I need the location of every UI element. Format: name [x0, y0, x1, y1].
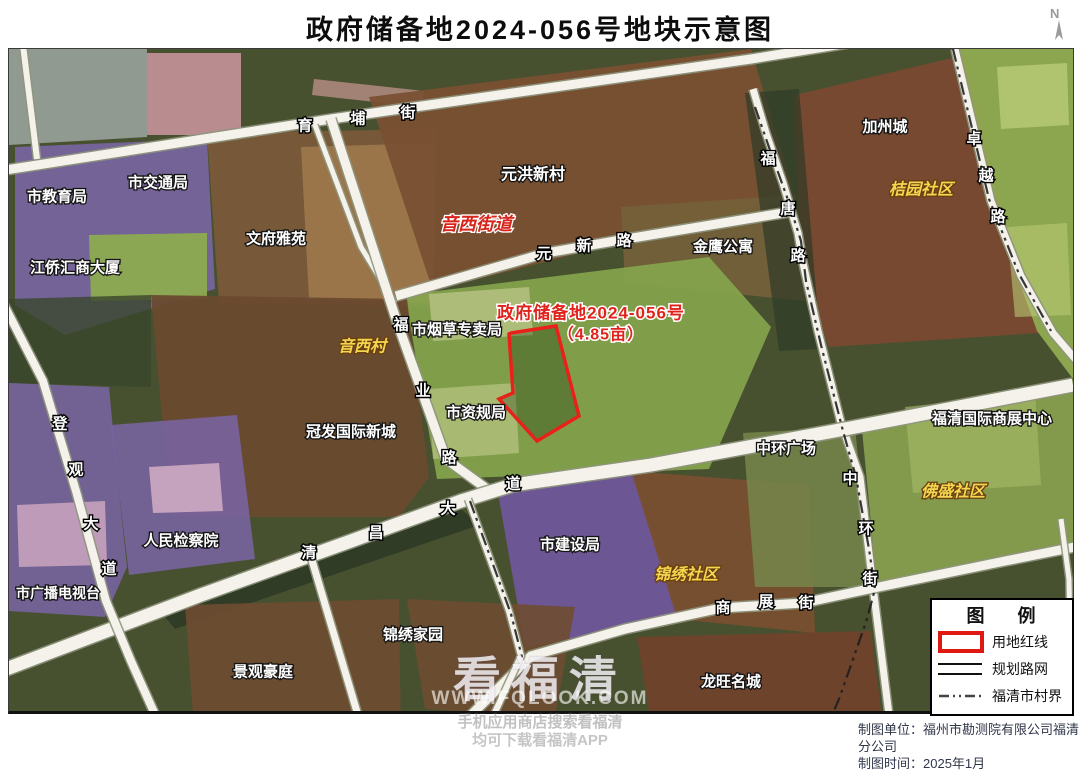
place-label: 市建设局	[540, 536, 600, 554]
place-label: 锦绣社区	[654, 566, 721, 584]
region-broadcast-purple	[9, 383, 127, 617]
road-label-char: 育	[297, 117, 312, 135]
region-longwang-brown	[637, 631, 881, 711]
road-label-char: 路	[990, 208, 1006, 226]
legend-label: 福清市村界	[992, 686, 1062, 706]
place-label: 江侨汇商大厦	[30, 259, 121, 277]
road-label-char: 街	[861, 570, 877, 588]
place-label: 音西村	[338, 338, 389, 356]
place-label: 龙旺名城	[700, 673, 761, 691]
double-line-icon	[938, 663, 984, 675]
credit-date: 制图时间：2025年1月	[858, 755, 1080, 772]
credit-unit: 制图单位：福州市勘测院有限公司福清分公司	[858, 721, 1080, 755]
legend-row-roads: 规划路网	[932, 655, 1072, 682]
place-label: 冠发国际新城	[306, 423, 396, 441]
north-arrow: N	[1042, 6, 1072, 46]
road-label-char: 卓	[966, 130, 981, 148]
road-label-char: 大	[83, 515, 98, 533]
legend: 图 例 用地红线 规划路网 福清市村界	[930, 598, 1074, 716]
region-track-field	[147, 53, 241, 135]
place-label: （4.85亩）	[558, 325, 644, 344]
place-label: 市交通局	[128, 174, 188, 192]
road-label-char: 清	[301, 544, 316, 562]
legend-row-boundary: 福清市村界	[932, 682, 1072, 709]
road-label-char: 埔	[350, 110, 365, 128]
region-treeband-left	[9, 295, 151, 387]
road-label-char: 街	[399, 104, 415, 122]
road-label-char: 路	[441, 449, 457, 467]
road-label-char: 福	[759, 150, 775, 168]
place-label: 文府雅苑	[246, 230, 306, 248]
road-label-char: 大	[440, 500, 455, 518]
road-label-char: 街	[797, 594, 813, 612]
place-label: 音西街道	[440, 214, 515, 234]
legend-title: 图 例	[932, 602, 1072, 628]
road-label-char: 环	[858, 521, 873, 538]
place-label: 加州城	[861, 118, 907, 136]
place-label: 金鹰公寓	[692, 238, 753, 256]
road-label-char: 中	[842, 470, 857, 488]
road-label-char: 路	[616, 232, 632, 250]
place-label: 福清国际商展中心	[931, 410, 1052, 428]
road-label-char: 道	[505, 475, 520, 493]
region-jingguan-brown	[185, 599, 401, 711]
road-label-char: 元	[536, 246, 551, 263]
road-label-char: 商	[715, 599, 730, 617]
road-label-char: 业	[415, 383, 430, 400]
place-label: 锦绣家园	[383, 626, 443, 644]
place-label: 桔园社区	[889, 181, 956, 199]
road-label-char: 越	[977, 167, 994, 185]
place-label: 市广播电视台	[16, 585, 100, 601]
place-label: 景观豪庭	[233, 663, 294, 681]
region-right-green-light1	[997, 63, 1069, 129]
red-outline-icon	[938, 631, 984, 653]
place-label: 中环广场	[756, 440, 816, 458]
legend-label: 规划路网	[992, 659, 1048, 679]
place-label: 佛盛社区	[921, 483, 988, 501]
place-label: 政府储备地2024-056号	[497, 303, 685, 323]
place-label: 市教育局	[27, 188, 87, 206]
north-label: N	[1050, 6, 1059, 21]
road-label-char: 道	[101, 560, 116, 578]
place-label: 市烟草专卖局	[412, 321, 502, 339]
road-label-char: 观	[68, 462, 83, 479]
road-label-char: 展	[758, 594, 773, 611]
road-label-char: 福	[392, 316, 408, 334]
legend-label: 用地红线	[992, 632, 1048, 652]
place-label: 人民检察院	[143, 532, 218, 550]
page-title: 政府储备地2024-056号地块示意图	[0, 8, 1080, 47]
map-svg: 育埔街元新路福业路清昌大道福唐路卓越路中环街商展街登观大道市教育局市交通局文府雅…	[9, 49, 1073, 711]
legend-row-parcel: 用地红线	[932, 628, 1072, 655]
road-label-char: 新	[576, 237, 591, 255]
road-label-char: 登	[51, 415, 68, 433]
dash-dot-icon	[938, 692, 984, 700]
region-procuratorate-bldg	[149, 463, 223, 513]
place-label: 市资规局	[446, 404, 506, 422]
map-credits: 制图单位：福州市勘测院有限公司福清分公司 制图时间：2025年1月	[858, 721, 1080, 772]
watermark-line2: 均可下载看福清APP	[472, 729, 608, 750]
map-frame: 育埔街元新路福业路清昌大道福唐路卓越路中环街商展街登观大道市教育局市交通局文府雅…	[8, 48, 1074, 714]
road-label-char: 昌	[368, 525, 383, 542]
place-label: 元洪新村	[501, 165, 565, 184]
road-label-char: 唐	[780, 200, 795, 218]
road-label-char: 路	[790, 247, 806, 265]
